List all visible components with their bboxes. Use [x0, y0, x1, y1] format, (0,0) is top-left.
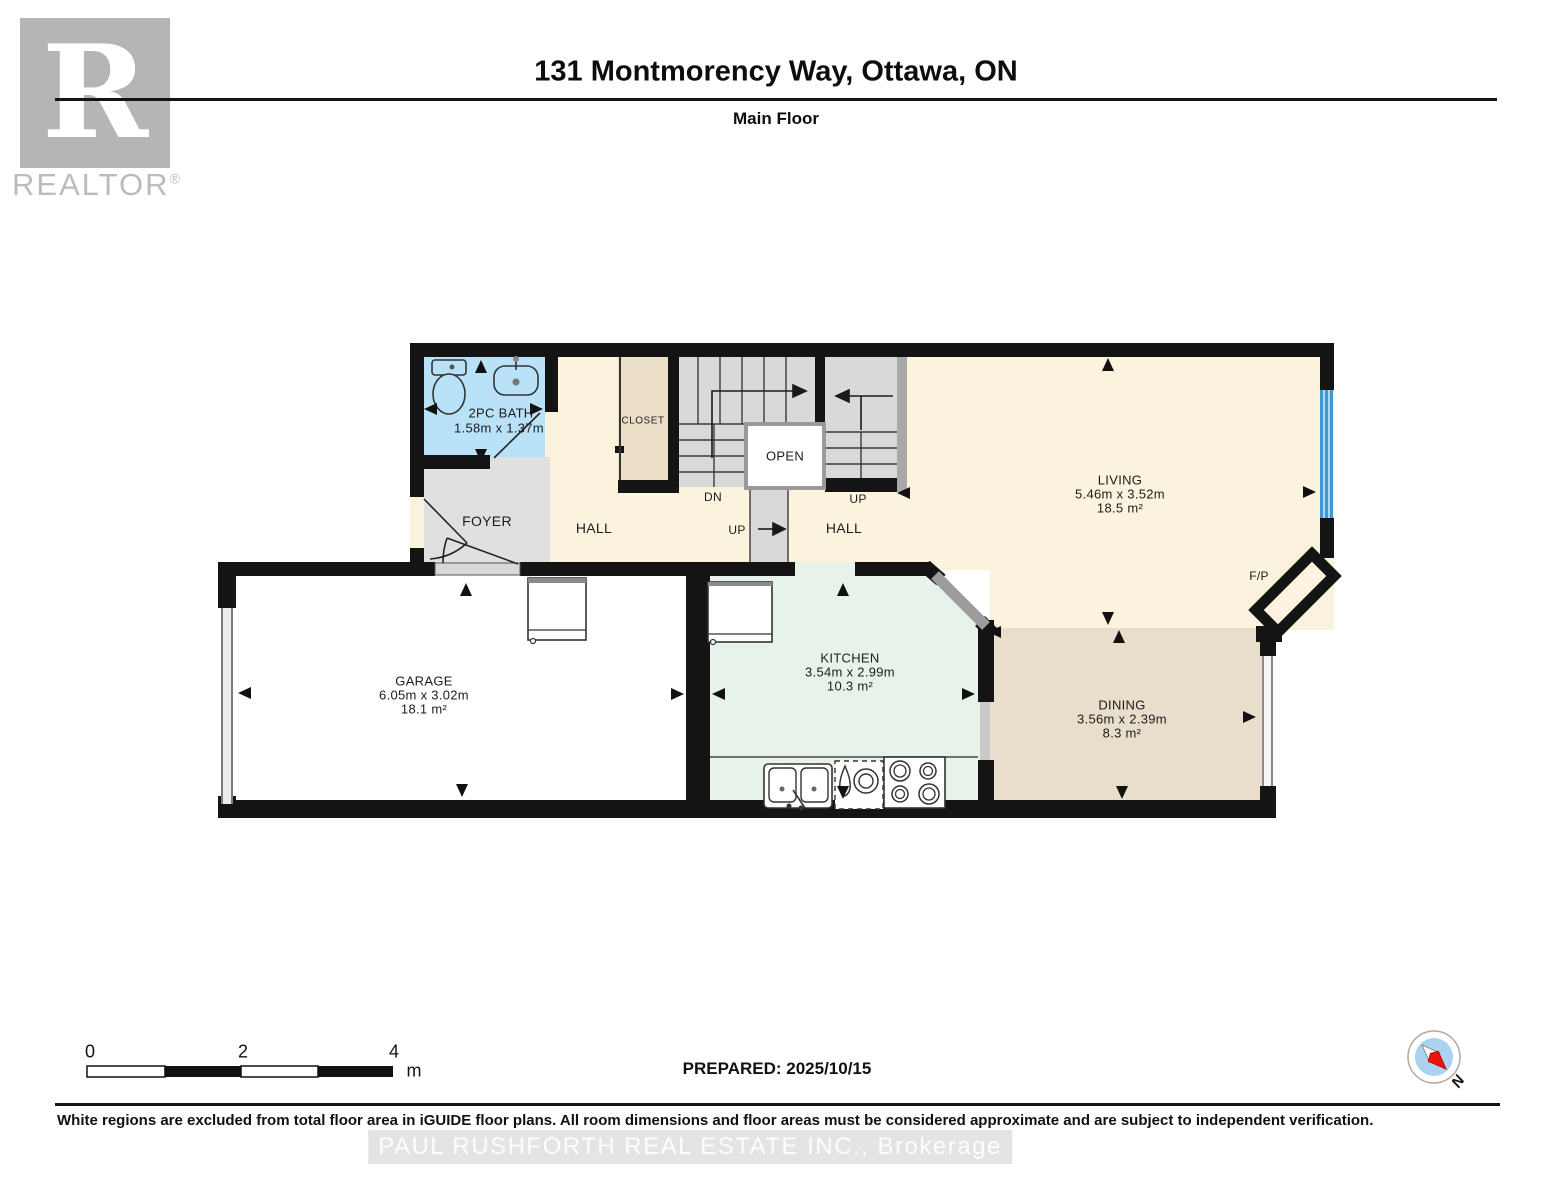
stair-half-wall	[897, 357, 907, 492]
stairs-dn-label: DN	[704, 490, 722, 504]
stove-icon	[884, 757, 945, 808]
floorplan-page: R REALTOR® 131 Montmorency Way, Ottawa, …	[0, 0, 1553, 1200]
foyer-fill	[424, 457, 550, 564]
stairs-up-center-label: UP	[728, 523, 745, 537]
garage-area: 18.1 m²	[401, 702, 447, 717]
toilet-tank-icon	[432, 360, 466, 375]
living-dims: 5.46m x 3.52m	[1075, 487, 1165, 502]
footer-disclaimer: White regions are excluded from total fl…	[57, 1112, 1373, 1129]
garage-label: GARAGE	[395, 674, 452, 689]
garage-utility-box	[528, 578, 586, 644]
garage-door	[221, 608, 233, 804]
living-label: LIVING	[1098, 473, 1142, 488]
stair-open-label: OPEN	[766, 449, 804, 464]
kitchen-sink-icon	[764, 764, 832, 811]
fireplace-label: F/P	[1249, 569, 1269, 583]
toilet-bowl-icon	[433, 374, 465, 414]
closet-label: CLOSET	[621, 416, 664, 427]
bath-dims: 1.58m x 1.37m	[454, 421, 544, 436]
scale-tick-0: 0	[85, 1042, 95, 1063]
dining-area: 8.3 m²	[1103, 726, 1142, 741]
stairs-up-right-label: UP	[849, 492, 866, 506]
fridge-icon	[708, 582, 772, 642]
scale-unit: m	[407, 1061, 422, 1082]
kitchen-area: 10.3 m²	[827, 679, 873, 694]
living-area: 18.5 m²	[1097, 501, 1143, 516]
stair-center-flight-fill	[750, 488, 788, 562]
footer-rule	[55, 1103, 1500, 1106]
dining-dims: 3.56m x 2.39m	[1077, 712, 1167, 727]
bath-label: 2PC BATH	[468, 406, 533, 421]
kitchen-label: KITCHEN	[820, 651, 879, 666]
scale-tick-4: 4	[389, 1042, 399, 1063]
foyer-label: FOYER	[462, 513, 512, 529]
prepared-date: PREPARED: 2025/10/15	[683, 1059, 872, 1079]
hall-left-label: HALL	[576, 520, 612, 536]
living-window	[1320, 390, 1333, 518]
kitchen-dining-half-wall	[980, 702, 990, 760]
brokerage-watermark: PAUL RUSHFORTH REAL ESTATE INC., Brokera…	[368, 1130, 1012, 1164]
garage-dims: 6.05m x 3.02m	[379, 688, 469, 703]
hall-right-label: HALL	[826, 520, 862, 536]
floorplan-svg	[0, 0, 1553, 1200]
scale-tick-2: 2	[238, 1042, 248, 1063]
dishwasher-icon	[835, 761, 883, 809]
kitchen-dims: 3.54m x 2.99m	[805, 665, 895, 680]
scale-bar	[87, 1066, 393, 1077]
dining-label: DINING	[1098, 698, 1145, 713]
